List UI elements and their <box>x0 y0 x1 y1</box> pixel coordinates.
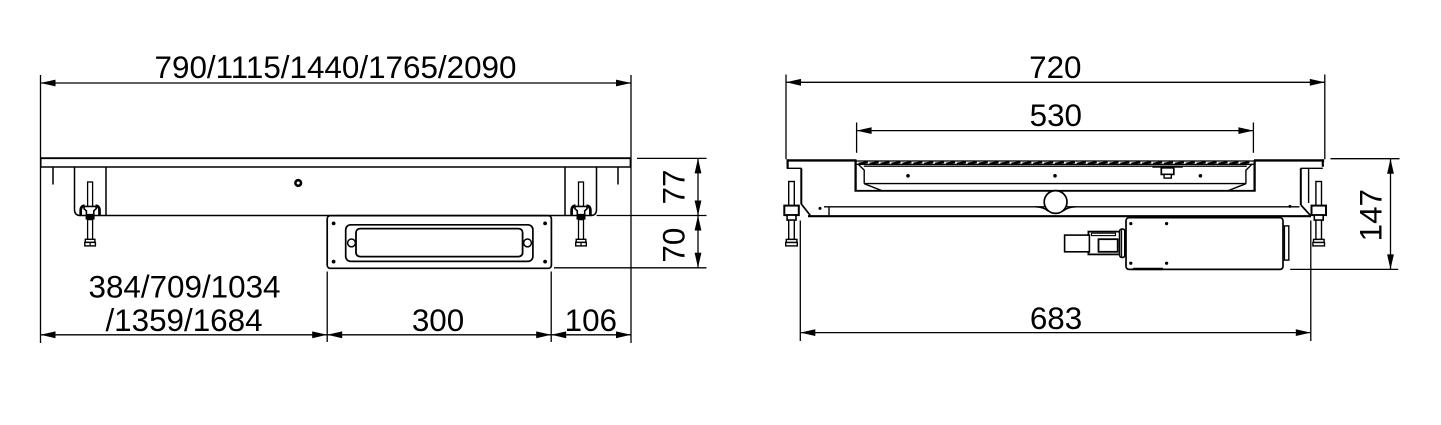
svg-text:384/709/1034: 384/709/1034 <box>88 269 280 304</box>
svg-text:147: 147 <box>1354 189 1389 241</box>
svg-text:77: 77 <box>657 170 692 205</box>
svg-text:720: 720 <box>1029 50 1081 85</box>
svg-text:/1359/1684: /1359/1684 <box>105 303 262 338</box>
svg-text:530: 530 <box>1030 98 1082 133</box>
svg-text:70: 70 <box>657 228 692 263</box>
svg-text:300: 300 <box>412 303 464 338</box>
svg-text:790/1115/1440/1765/2090: 790/1115/1440/1765/2090 <box>155 50 517 85</box>
svg-text:683: 683 <box>1030 301 1082 336</box>
svg-text:106: 106 <box>565 303 617 338</box>
